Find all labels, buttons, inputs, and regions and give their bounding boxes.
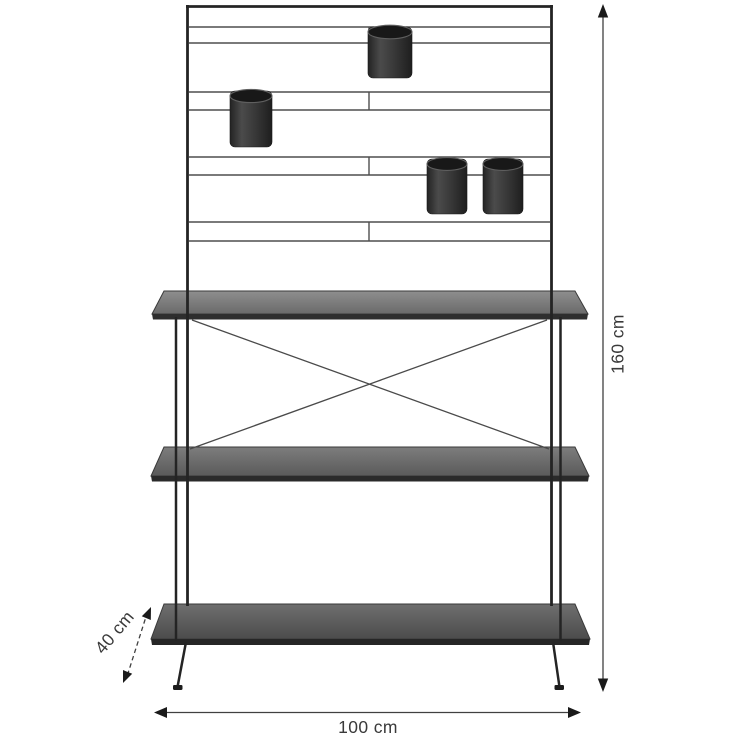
- foot-right: [555, 685, 565, 690]
- height-dimension-label: 160 cm: [608, 314, 628, 374]
- plant-pot: [230, 89, 272, 147]
- shelf-front-edge: [151, 476, 589, 482]
- dimension-depth: 40 cm: [91, 607, 151, 683]
- arrow-down-icon: [598, 679, 608, 693]
- foot-left: [173, 685, 183, 690]
- shelf-bottom: [151, 604, 590, 645]
- panel-wire-row: [189, 222, 550, 241]
- arrow-down-left-icon: [123, 670, 132, 683]
- product-dimension-diagram: 160 cm 100 cm 40 cm: [0, 0, 736, 736]
- arrow-up-right-icon: [142, 607, 151, 620]
- pot-rim: [368, 25, 412, 39]
- shelf-front-edge: [151, 639, 590, 645]
- arrow-up-icon: [598, 4, 608, 18]
- plant-pot: [427, 158, 467, 214]
- shelves: [151, 291, 590, 645]
- dimension-width: 100 cm: [154, 707, 581, 736]
- plant-pots: [230, 25, 523, 214]
- plant-pot: [368, 25, 412, 78]
- cross-brace: [190, 320, 549, 449]
- slant-leg-right: [553, 642, 560, 687]
- depth-dimension-label: 40 cm: [91, 607, 138, 658]
- shelf-middle: [151, 447, 589, 482]
- arrow-right-icon: [568, 707, 581, 718]
- shelf-top: [152, 291, 588, 320]
- arrow-left-icon: [154, 707, 167, 718]
- width-dimension-label: 100 cm: [338, 717, 398, 736]
- pot-rim: [483, 158, 523, 171]
- slant-leg-left: [178, 642, 187, 687]
- dimension-height: 160 cm: [598, 4, 628, 692]
- plant-pot: [483, 158, 523, 214]
- pot-rim: [230, 89, 272, 102]
- pot-rim: [427, 158, 467, 171]
- shelf-front-edge: [152, 314, 588, 320]
